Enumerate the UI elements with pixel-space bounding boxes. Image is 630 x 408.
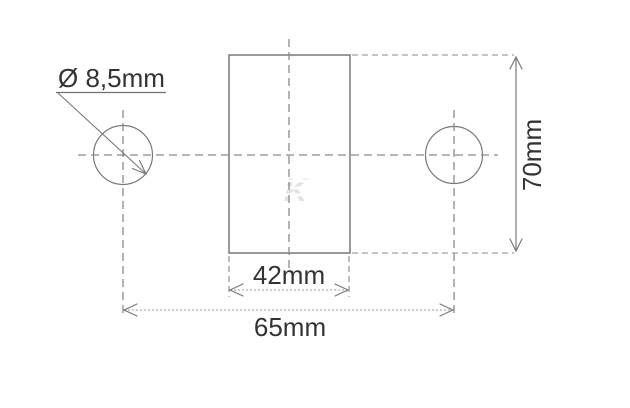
drawing-canvas: K Ø 8,5 xyxy=(0,0,630,408)
body-height-label: 70mm xyxy=(517,119,547,191)
hole-spacing-label: 65mm xyxy=(254,312,326,342)
watermark-letter: K xyxy=(284,172,310,208)
brand-watermark-icon: K xyxy=(276,172,318,208)
body-width-label: 42mm xyxy=(253,260,325,290)
hole-diameter-label: Ø 8,5mm xyxy=(58,63,165,93)
technical-drawing: K Ø 8,5 xyxy=(0,0,630,408)
leader-line xyxy=(58,93,146,174)
